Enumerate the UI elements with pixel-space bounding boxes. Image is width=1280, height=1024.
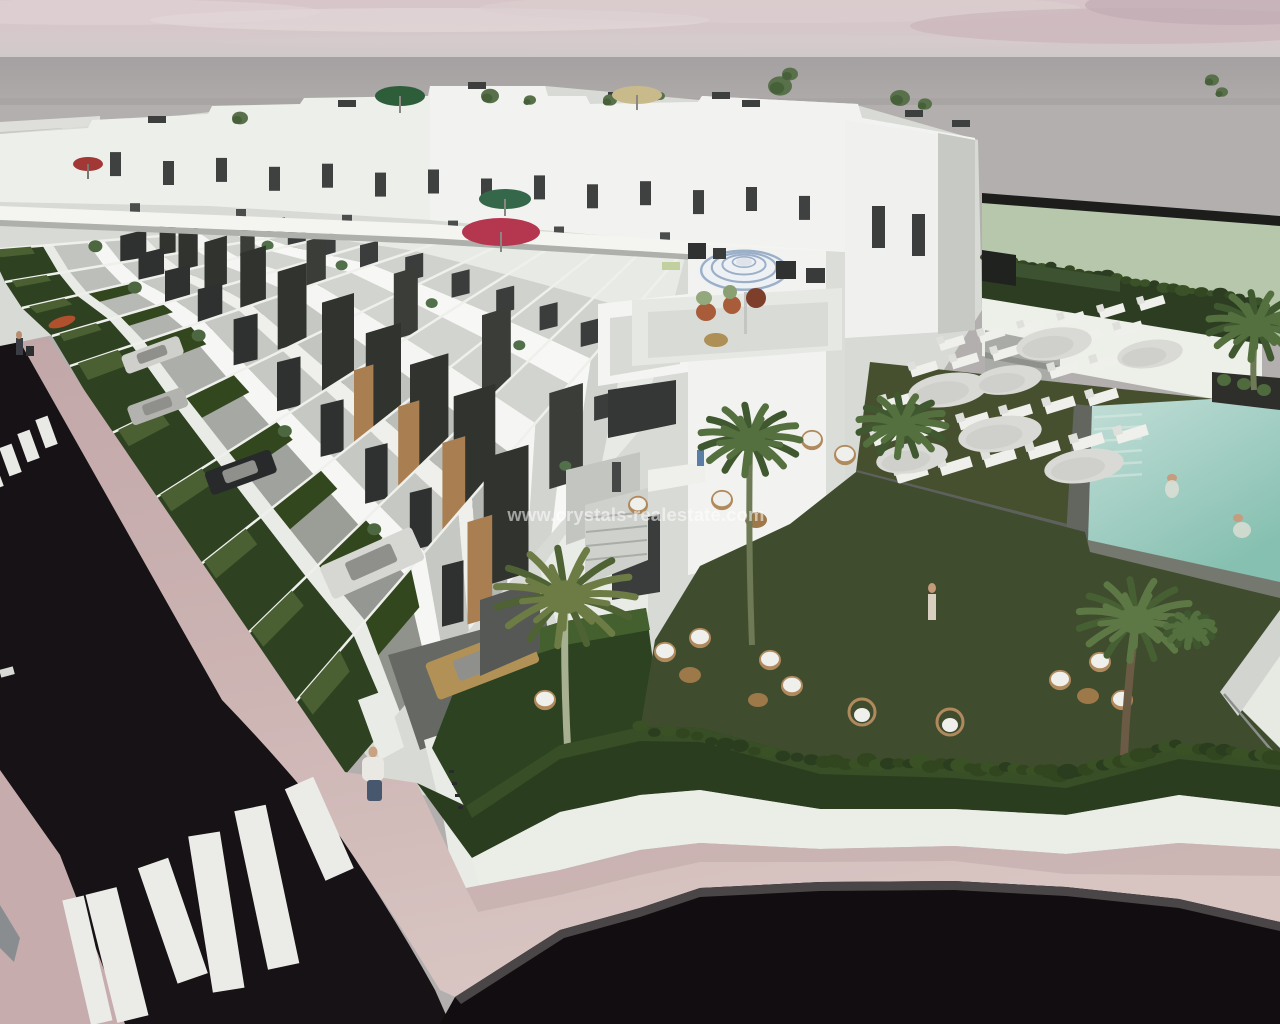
- svg-text:www.crystals-realestate.com: www.crystals-realestate.com: [506, 504, 764, 525]
